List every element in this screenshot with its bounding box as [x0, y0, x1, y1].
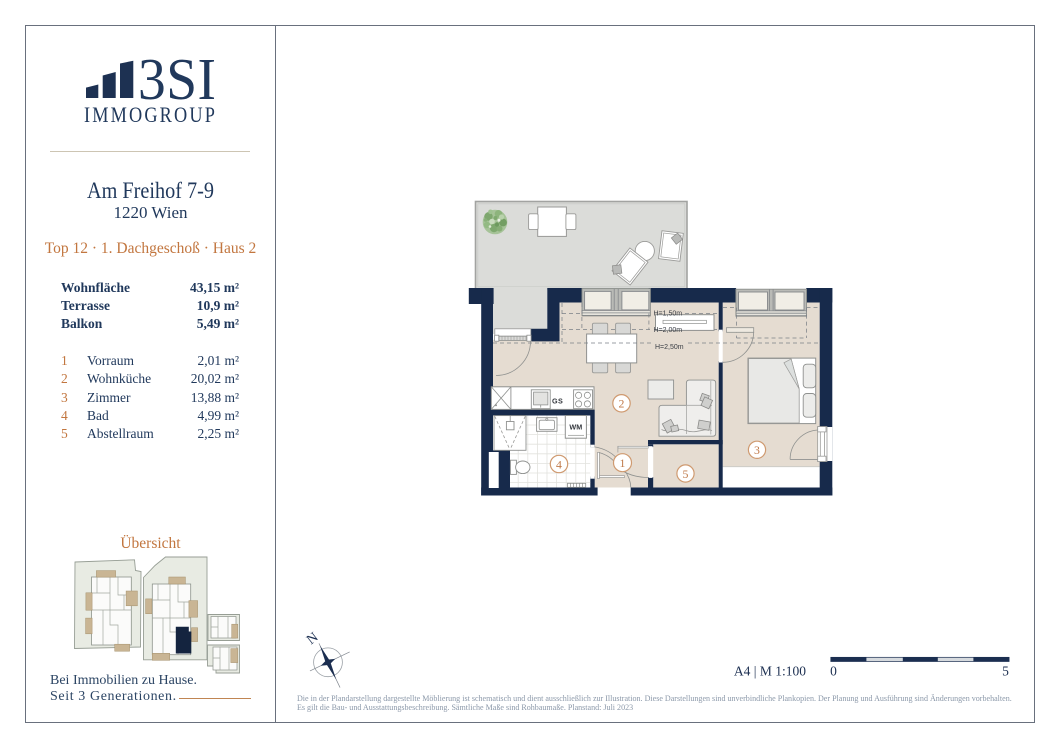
svg-text:GS: GS [552, 396, 563, 405]
svg-text:H=1,50m: H=1,50m [654, 311, 683, 318]
svg-text:5: 5 [683, 467, 689, 481]
svg-text:2: 2 [619, 397, 625, 411]
svg-text:0: 0 [830, 664, 837, 679]
svg-text:WM: WM [569, 423, 582, 432]
svg-text:5: 5 [1002, 664, 1009, 679]
svg-text:H=2,00m: H=2,00m [654, 327, 683, 334]
svg-text:A4 | M 1:100: A4 | M 1:100 [734, 664, 806, 679]
svg-text:3: 3 [754, 443, 760, 457]
svg-text:1: 1 [620, 456, 626, 470]
svg-text:4: 4 [556, 457, 562, 471]
svg-text:N: N [304, 630, 321, 648]
svg-text:H=2,50m: H=2,50m [655, 344, 684, 351]
